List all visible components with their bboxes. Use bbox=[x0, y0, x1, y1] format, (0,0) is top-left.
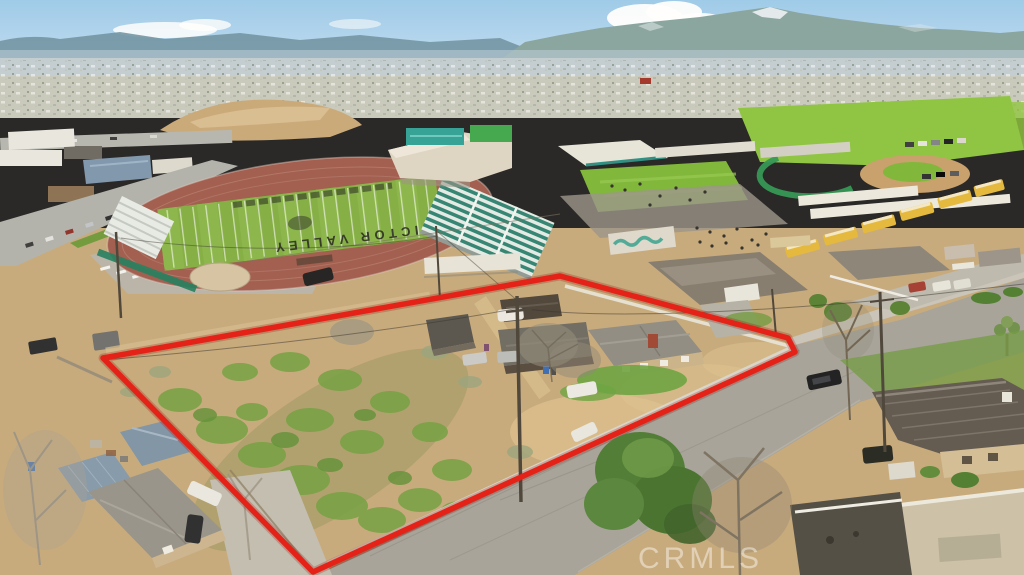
aerial-photo: VICTOR VALLEY bbox=[0, 0, 1024, 575]
